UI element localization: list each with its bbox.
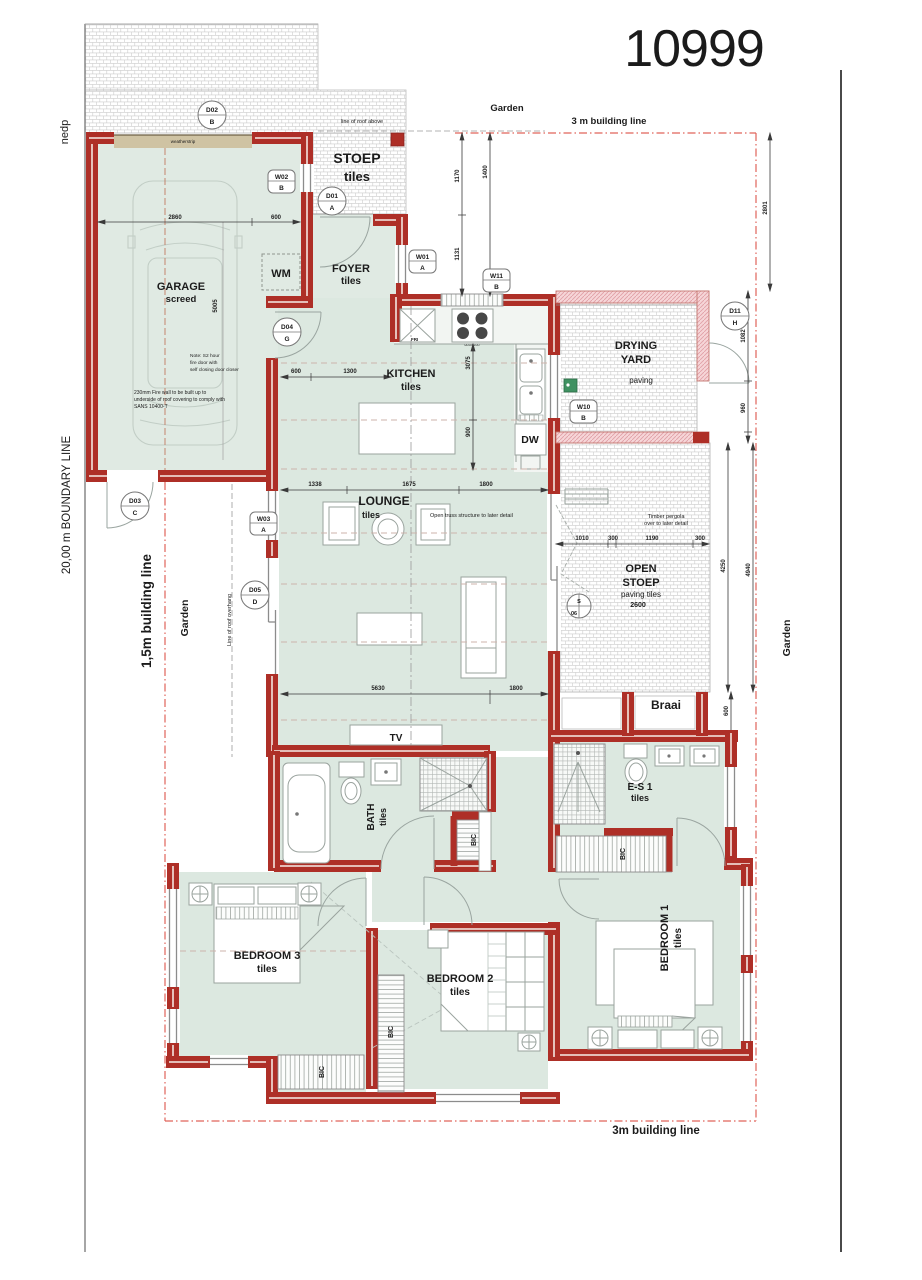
svg-text:W11: W11 bbox=[490, 273, 503, 280]
svg-text:B: B bbox=[210, 119, 215, 126]
svg-text:paving tiles: paving tiles bbox=[621, 590, 661, 599]
svg-text:tiles: tiles bbox=[344, 169, 370, 184]
svg-text:WM: WM bbox=[271, 268, 291, 280]
svg-text:STOEP: STOEP bbox=[622, 577, 659, 589]
svg-text:1800: 1800 bbox=[479, 482, 493, 488]
svg-text:DW: DW bbox=[521, 434, 539, 446]
svg-text:230mm Fire wall to be built up: 230mm Fire wall to be built up to bbox=[134, 390, 206, 396]
svg-text:B: B bbox=[494, 284, 499, 291]
svg-text:D: D bbox=[253, 599, 258, 606]
svg-text:300: 300 bbox=[608, 536, 619, 542]
svg-text:Braai: Braai bbox=[651, 698, 681, 712]
svg-text:B: B bbox=[279, 185, 284, 192]
svg-text:tiles: tiles bbox=[257, 964, 277, 975]
svg-text:underside of roof covering to: underside of roof covering to comply wit… bbox=[134, 397, 225, 403]
svg-text:900: 900 bbox=[466, 426, 472, 437]
svg-text:screed: screed bbox=[166, 294, 197, 305]
svg-text:nedp: nedp bbox=[59, 120, 71, 144]
svg-text:H: H bbox=[733, 320, 738, 327]
svg-text:BEDROOM 1: BEDROOM 1 bbox=[659, 905, 671, 972]
svg-text:BIC: BIC bbox=[620, 848, 627, 860]
svg-text:5005: 5005 bbox=[213, 299, 219, 313]
svg-text:D05: D05 bbox=[249, 587, 261, 594]
svg-text:20,00 m BOUNDARY LINE: 20,00 m BOUNDARY LINE bbox=[61, 436, 73, 575]
svg-text:2801: 2801 bbox=[763, 201, 769, 215]
svg-text:600: 600 bbox=[724, 705, 730, 716]
svg-text:300: 300 bbox=[695, 536, 706, 542]
svg-text:Garden: Garden bbox=[781, 620, 793, 657]
svg-text:BIC: BIC bbox=[471, 834, 478, 846]
svg-text:W01: W01 bbox=[416, 254, 430, 261]
svg-text:Garden: Garden bbox=[490, 103, 523, 114]
svg-text:10999: 10999 bbox=[624, 20, 764, 78]
svg-text:D04: D04 bbox=[281, 324, 293, 331]
svg-text:SANS 10400-T: SANS 10400-T bbox=[134, 404, 168, 410]
svg-text:2600: 2600 bbox=[630, 602, 646, 609]
svg-text:BATH: BATH bbox=[366, 803, 377, 830]
svg-text:5630: 5630 bbox=[371, 686, 385, 692]
svg-text:1010: 1010 bbox=[575, 536, 589, 542]
svg-text:Timber pergola: Timber pergola bbox=[648, 514, 686, 520]
svg-text:D02: D02 bbox=[206, 107, 218, 114]
svg-text:Garden: Garden bbox=[179, 600, 191, 637]
svg-text:D03: D03 bbox=[129, 498, 141, 505]
svg-text:D11: D11 bbox=[729, 308, 741, 315]
svg-text:self closing door closer: self closing door closer bbox=[190, 367, 239, 373]
svg-text:tiles: tiles bbox=[631, 793, 649, 803]
svg-text:tiles: tiles bbox=[450, 987, 470, 998]
svg-text:1338: 1338 bbox=[308, 482, 322, 488]
svg-text:4940: 4940 bbox=[746, 563, 752, 577]
svg-text:1800: 1800 bbox=[509, 686, 523, 692]
svg-text:06: 06 bbox=[571, 611, 577, 617]
svg-text:A: A bbox=[420, 265, 425, 272]
svg-text:FOYER: FOYER bbox=[332, 263, 370, 275]
svg-text:LOUNGE: LOUNGE bbox=[358, 494, 409, 508]
svg-text:Note: S2 hour: Note: S2 hour bbox=[190, 353, 220, 359]
svg-text:DRYING: DRYING bbox=[615, 340, 657, 352]
svg-text:W10: W10 bbox=[577, 404, 591, 411]
svg-text:1675: 1675 bbox=[402, 482, 416, 488]
svg-text:2860: 2860 bbox=[168, 215, 182, 221]
svg-text:tiles: tiles bbox=[401, 382, 421, 393]
svg-text:1170: 1170 bbox=[455, 169, 461, 183]
svg-text:over to later detail: over to later detail bbox=[644, 521, 688, 527]
svg-text:tiles: tiles bbox=[341, 276, 361, 287]
svg-text:weatherstrip: weatherstrip bbox=[171, 139, 196, 144]
svg-text:C: C bbox=[133, 510, 138, 517]
svg-text:1082: 1082 bbox=[741, 329, 747, 343]
svg-text:960: 960 bbox=[741, 402, 747, 413]
svg-text:E-S 1: E-S 1 bbox=[627, 782, 652, 793]
svg-text:tiles: tiles bbox=[673, 928, 684, 948]
svg-text:BIC: BIC bbox=[319, 1066, 326, 1078]
svg-text:YARD: YARD bbox=[621, 354, 651, 366]
svg-text:W02: W02 bbox=[275, 174, 289, 181]
svg-text:paving: paving bbox=[629, 376, 653, 385]
svg-text:Open truss structure to later: Open truss structure to later detail bbox=[430, 513, 513, 519]
svg-text:1300: 1300 bbox=[343, 369, 357, 375]
svg-text:1400: 1400 bbox=[483, 165, 489, 179]
svg-text:BIC: BIC bbox=[388, 1026, 395, 1038]
svg-text:tiles: tiles bbox=[362, 510, 380, 520]
svg-text:W03: W03 bbox=[257, 516, 271, 523]
svg-text:1190: 1190 bbox=[645, 536, 659, 542]
svg-text:S: S bbox=[577, 599, 581, 605]
svg-text:KITCHEN: KITCHEN bbox=[387, 368, 436, 380]
svg-text:600: 600 bbox=[291, 369, 302, 375]
svg-text:A: A bbox=[261, 527, 266, 534]
svg-text:4250: 4250 bbox=[721, 559, 727, 573]
svg-text:line of roof above: line of roof above bbox=[341, 119, 383, 125]
svg-text:TV: TV bbox=[390, 733, 403, 744]
svg-text:600: 600 bbox=[271, 215, 282, 221]
svg-text:BEDROOM 3: BEDROOM 3 bbox=[234, 950, 301, 962]
svg-text:BEDROOM 2: BEDROOM 2 bbox=[427, 973, 494, 985]
svg-text:G: G bbox=[284, 336, 289, 343]
svg-text:OPEN: OPEN bbox=[625, 563, 656, 575]
svg-text:A: A bbox=[330, 205, 335, 212]
svg-text:FRI: FRI bbox=[411, 337, 418, 342]
svg-text:3075: 3075 bbox=[466, 356, 472, 370]
svg-text:fire door with: fire door with bbox=[190, 360, 218, 366]
svg-text:3m building line: 3m building line bbox=[612, 1125, 700, 1137]
svg-text:3 m building line: 3 m building line bbox=[572, 116, 647, 127]
svg-text:GARAGE: GARAGE bbox=[157, 281, 205, 293]
svg-text:tiles: tiles bbox=[378, 808, 388, 826]
svg-text:B: B bbox=[581, 415, 586, 422]
svg-text:STOEP: STOEP bbox=[333, 150, 380, 166]
svg-text:1131: 1131 bbox=[455, 247, 461, 261]
svg-text:1,5m building line: 1,5m building line bbox=[139, 554, 154, 669]
svg-text:Line of roof overhang: Line of roof overhang bbox=[227, 594, 233, 646]
svg-text:D01: D01 bbox=[326, 193, 338, 200]
